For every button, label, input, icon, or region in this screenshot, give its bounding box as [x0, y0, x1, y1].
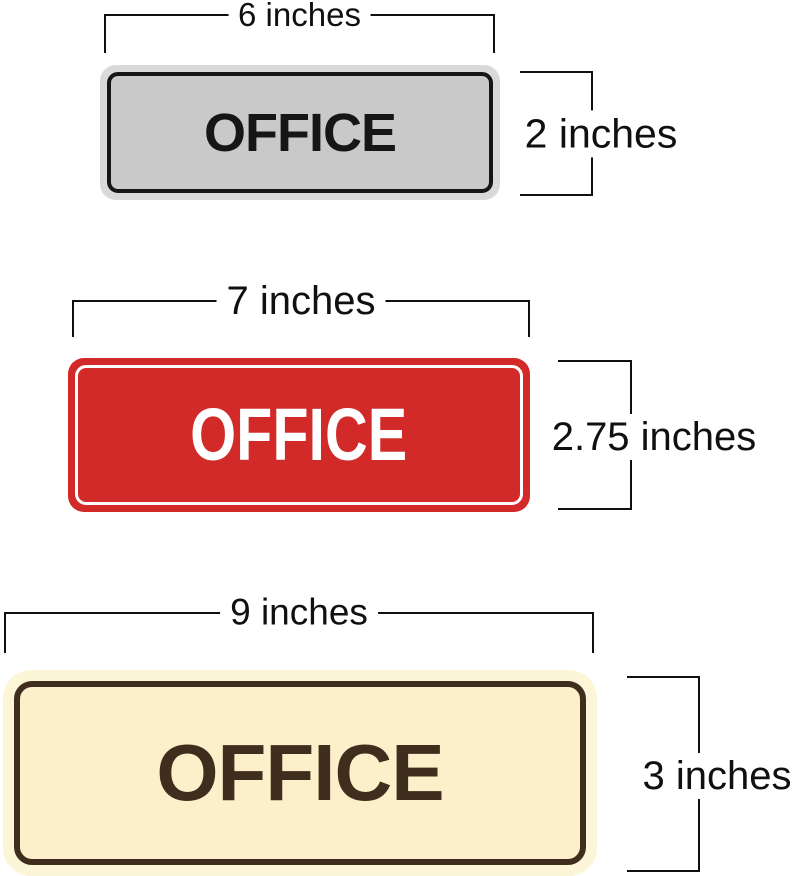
sign-text: OFFICE [204, 106, 396, 160]
sign-plate: OFFICE [14, 681, 586, 865]
dimension-tick [520, 194, 593, 196]
height-dimension-sign2: 2.75 inches [558, 360, 632, 510]
height-label-sign1: 2 inches [515, 110, 688, 157]
width-label-sign2: 7 inches [217, 278, 386, 324]
dimension-tick [104, 14, 106, 53]
dimension-tick [72, 300, 74, 337]
sign-plate: OFFICE [75, 365, 523, 505]
height-label-sign2: 2.75 inches [542, 414, 767, 460]
dimension-tick [4, 612, 6, 653]
sign-text: OFFICE [190, 398, 407, 472]
dimension-tick [493, 14, 495, 53]
width-label-sign1: 6 inches [228, 0, 371, 34]
dimension-tick [558, 360, 632, 362]
sign-plate: OFFICE [107, 72, 493, 193]
office-sign-red: OFFICE [68, 358, 530, 512]
sign-text: OFFICE [156, 733, 443, 813]
dimension-tick [520, 71, 593, 73]
height-label-sign3: 3 inches [633, 753, 795, 799]
dimension-tick [592, 612, 594, 653]
height-dimension-sign3: 3 inches [627, 676, 700, 872]
dimension-tick [627, 676, 700, 678]
dimension-tick [558, 508, 632, 510]
office-sign-silver: OFFICE [100, 65, 500, 200]
office-sign-cream: OFFICE [3, 670, 597, 876]
dimension-tick [627, 870, 700, 872]
product-dimension-diagram: 6 inches OFFICE 2 inches 7 inches OFFICE… [0, 0, 795, 876]
dimension-tick [528, 300, 530, 337]
height-dimension-sign1: 2 inches [520, 71, 593, 196]
width-label-sign3: 9 inches [220, 592, 378, 635]
